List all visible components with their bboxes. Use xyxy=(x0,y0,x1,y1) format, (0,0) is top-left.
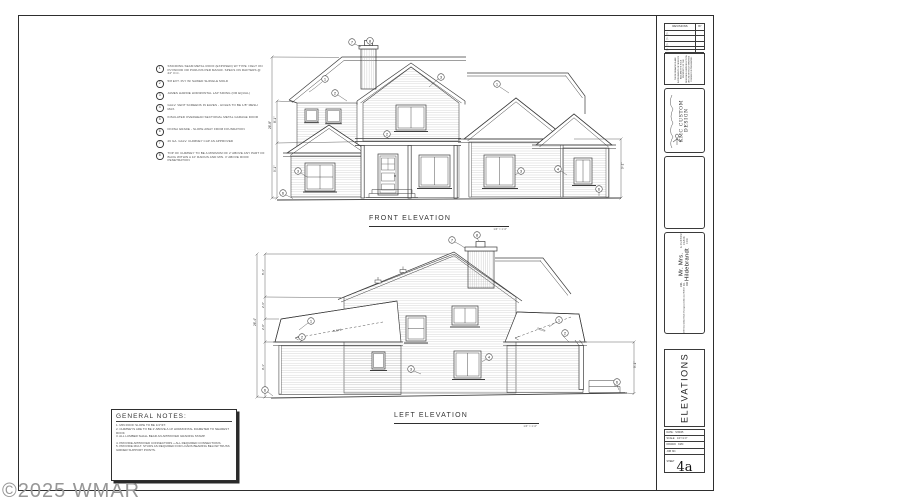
sheet-number-cell: SHEET 4a xyxy=(665,460,704,482)
dim-label: 2'-6" xyxy=(261,302,265,308)
firm-logo-box: KMC CUSTOM DESIGN xyxy=(664,88,705,153)
keynote-number: 2 xyxy=(156,80,164,88)
general-notes-box: GENERAL NOTES: 1. MIN ROOF SLOPE TO BE 1… xyxy=(111,409,237,481)
left-elevation-scale: 1/4" = 1'-0" xyxy=(523,424,537,428)
keynote-number: 4 xyxy=(156,104,164,112)
revision-delta-icon: △ xyxy=(665,36,696,41)
keynote-item: 726 GA. GALV. CHIMNEY CAP AS APPROVED xyxy=(156,140,266,148)
title-block: REVISIONS BY △ △ △ △ THESE DRAWINGS ARE … xyxy=(656,16,714,490)
date-value: 5/30/05 xyxy=(675,430,683,435)
revision-delta-icon: △ xyxy=(665,42,696,47)
keynote-text: TOP OF CHIMNEY TO BE A MINIMUM OF 2' ABO… xyxy=(168,152,267,163)
revisions-title: REVISIONS xyxy=(665,24,696,30)
project-info-box: 268 Snowblind Club Overgaard, Arizona 85… xyxy=(664,232,705,334)
scanned-drawing-page: { "page": { "watermark": "©2025 WMAR" },… xyxy=(0,0,900,500)
firm-logo-ornament-icon xyxy=(671,133,683,147)
keynote-text: 5/8 EXT. PLY W/ SAWED SHINGLE MOLD xyxy=(168,80,229,84)
revisions-table: REVISIONS BY △ △ △ △ xyxy=(664,23,705,50)
keynote-text: STANDING SEAM METAL ROOF (EXPOSED) W/ TY… xyxy=(168,65,267,76)
keynote-number: 1 xyxy=(156,65,164,73)
keynote-item: 6FINISH GRADE - SLOPE AWAY FROM FOUNDATI… xyxy=(156,128,266,136)
keynote-number: 3 xyxy=(156,92,164,100)
sheet-label: SHEET xyxy=(667,460,675,463)
project-city: Overgaard, Arizona 85933 xyxy=(684,287,686,313)
sheet-info-table: DATE:5/30/05 SCALE:1/4"=1'-0" DRAWN:KMC … xyxy=(664,429,705,473)
job-label: JOB NO. xyxy=(667,449,677,454)
dim-label: 8'-1" xyxy=(273,117,277,123)
keynote-legend: 1STANDING SEAM METAL ROOF (EXPOSED) W/ T… xyxy=(156,65,266,168)
revision-delta-icon: △ xyxy=(665,47,696,52)
dim-label: 8'-1" xyxy=(261,269,265,275)
keynote-item: 8TOP OF CHIMNEY TO BE A MINIMUM OF 2' AB… xyxy=(156,152,266,163)
keynote-number: 5 xyxy=(156,116,164,124)
keynote-number: 7 xyxy=(156,140,164,148)
project-parcel: 208-49-033 xyxy=(680,281,689,287)
dim-label: 9'-1" xyxy=(273,166,277,172)
drawn-label: DRAWN: xyxy=(667,442,677,447)
dim-label: 26'-8" xyxy=(268,121,272,129)
keynote-text: GALV. VENT SCREENS IN EAVES - HOLES TO B… xyxy=(168,104,267,111)
date-label: DATE: xyxy=(667,430,674,435)
keynote-item: 25/8 EXT. PLY W/ SAWED SHINGLE MOLD xyxy=(156,80,266,88)
dim-label: 2'-0" xyxy=(261,324,265,330)
project-address-line: 268 Snowblind Club Overgaard, Arizona 85… xyxy=(684,287,686,333)
keynote-item: 4GALV. VENT SCREENS IN EAVES - HOLES TO … xyxy=(156,104,266,112)
revisions-by-label: BY xyxy=(696,24,704,30)
dim-label: 9'-1" xyxy=(261,364,265,370)
project-address: 268 Snowblind Club xyxy=(684,314,686,333)
left-elevation-drawing: 26'-4" 8'-1" 2'-6" 2'-0" 9'-1" 9'-1" SLO… xyxy=(249,230,649,408)
front-elevation-drawing: 26'-8" 8'-1" 9'-1" 9'-1" 1 2 7 8 3 1 2 3… xyxy=(269,37,634,209)
client-name: Mr. Mrs. Hildebrandt xyxy=(679,248,691,281)
general-note: 3. ALL LUMBER SHALL BEAR AN APPROVED GRA… xyxy=(116,435,232,439)
keynote-item: 3JAMES HARDIE HORIZONTAL LAP SIDING (OR … xyxy=(156,92,266,100)
keynote-number: 6 xyxy=(156,128,164,136)
general-note: 5. PROVIDE MULT. STUDS AS REQUIRED FOR L… xyxy=(116,445,232,453)
left-elevation-title: LEFT ELEVATION xyxy=(394,412,468,419)
info-row-job: JOB NO. xyxy=(665,449,704,455)
scale-label: SCALE: xyxy=(667,436,676,441)
keynote-item: 1STANDING SEAM METAL ROOF (EXPOSED) W/ T… xyxy=(156,65,266,76)
front-elevation-title: FRONT ELEVATION xyxy=(369,215,451,222)
dim-label: 26'-4" xyxy=(253,318,257,326)
keynote-number: 8 xyxy=(156,152,164,160)
keynote-item: 5INSULATED OVERHEAD SECTIONAL METAL GARA… xyxy=(156,116,266,124)
sheet-title: ELEVATIONS xyxy=(680,353,690,423)
disclaimer-box: THESE DRAWINGS ARE INSTRUMENTS OF SERVIC… xyxy=(664,53,705,85)
dim-label: 9'-1" xyxy=(621,163,625,169)
general-notes-title: GENERAL NOTES: xyxy=(116,413,232,422)
drawing-sheet: 1STANDING SEAM METAL ROOF (EXPOSED) W/ T… xyxy=(18,15,714,491)
scale-value: 1/4"=1'-0" xyxy=(677,436,687,441)
keynote-text: JAMES HARDIE HORIZONTAL LAP SIDING (OR E… xyxy=(168,92,250,96)
left-elevation-label: LEFT ELEVATION 1/4" = 1'-0" xyxy=(394,404,539,424)
blank-title-box xyxy=(664,156,705,229)
sheet-title-box: ELEVATIONS xyxy=(664,349,705,427)
dim-label: 9'-1" xyxy=(633,362,637,368)
revision-delta-icon: △ xyxy=(665,31,696,36)
keynote-text: FINISH GRADE - SLOPE AWAY FROM FOUNDATIO… xyxy=(168,128,245,132)
drawn-value: KMC xyxy=(678,442,683,447)
keynote-text: INSULATED OVERHEAD SECTIONAL METAL GARAG… xyxy=(168,116,259,120)
disclaimer-text: THESE DRAWINGS ARE INSTRUMENTS OF SERVIC… xyxy=(674,54,695,84)
front-elevation-label: FRONT ELEVATION 1/4" = 1'-0" xyxy=(369,207,509,227)
keynote-text: 26 GA. GALV. CHIMNEY CAP AS APPROVED xyxy=(168,140,234,144)
project-prefix: A CUSTOM CABIN FOR xyxy=(680,233,689,248)
